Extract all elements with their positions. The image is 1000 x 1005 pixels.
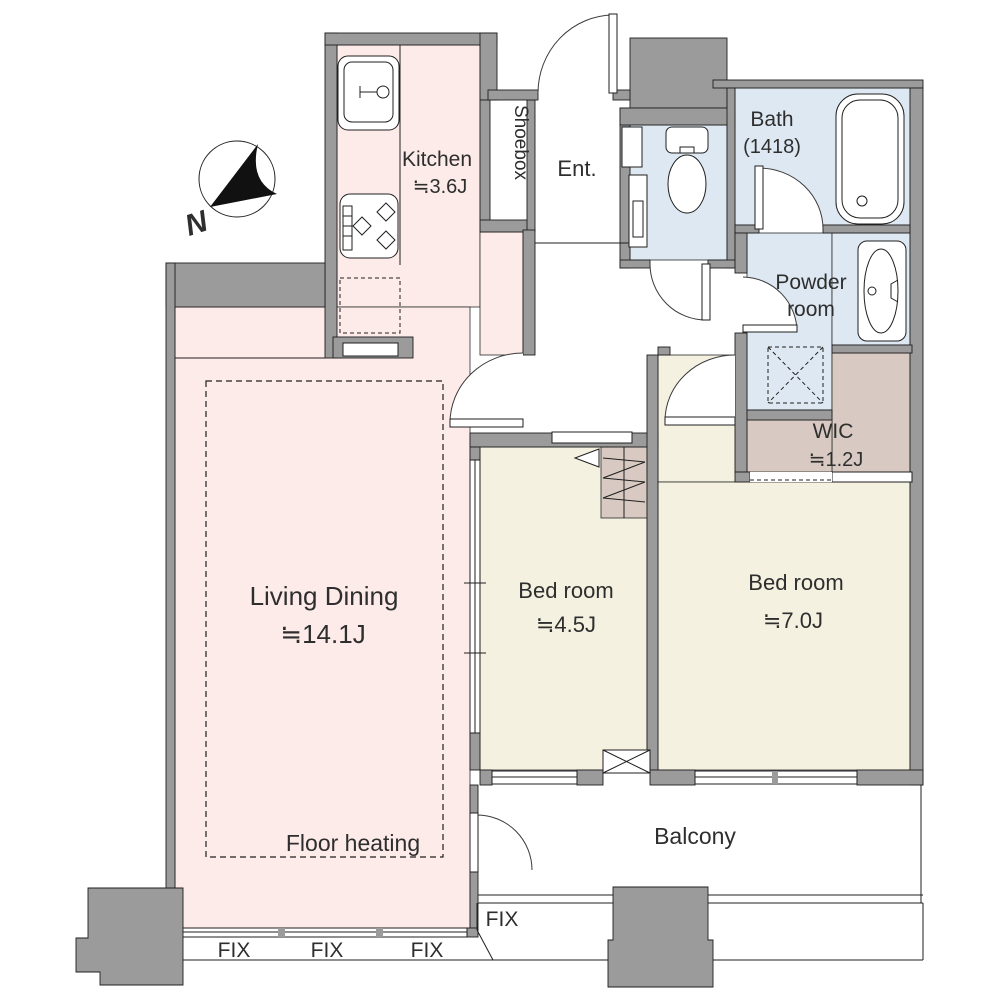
pantry-floor bbox=[480, 232, 523, 355]
wall-kitchen-left bbox=[325, 33, 337, 358]
bathtub-icon bbox=[836, 94, 904, 224]
toilet-door-swing bbox=[650, 264, 706, 320]
pillar-left bbox=[76, 888, 183, 985]
shoebox-label: Shoebox bbox=[510, 105, 531, 181]
living-dining-label: Living Dining bbox=[250, 581, 399, 611]
wall-corner-block bbox=[467, 928, 478, 937]
wall-shoebox-bottom bbox=[480, 220, 528, 232]
wall-balcony-left-upper bbox=[470, 785, 478, 815]
entrance-door-swing bbox=[538, 15, 613, 93]
wic-door-panel bbox=[832, 472, 912, 482]
wall-south-b bbox=[577, 770, 603, 785]
wic-opening bbox=[750, 472, 832, 482]
wall-wic-top bbox=[832, 345, 912, 353]
bath-door-leaf bbox=[755, 166, 763, 229]
wall-band-left bbox=[166, 263, 325, 307]
wall-bedroom-large-top-stub bbox=[658, 347, 670, 355]
window-mullion bbox=[278, 928, 285, 937]
bedroom-small-area-label: ≒4.5J bbox=[536, 612, 596, 637]
wall-toilet-top bbox=[620, 108, 735, 125]
wall-toilet-bottom-left bbox=[620, 260, 650, 268]
floor-plan: N Kitchen ≒3.6J Shoebox Ent. Bath (1418)… bbox=[0, 0, 1000, 1000]
wall-bath-bottom-right bbox=[823, 225, 910, 233]
wic-area-label: ≒1.2J bbox=[809, 449, 864, 471]
sink-outer bbox=[338, 56, 399, 130]
wall-wic-bottom-stub bbox=[735, 472, 750, 482]
powder-door-leaf bbox=[743, 325, 797, 332]
floor-heating-label: Floor heating bbox=[286, 830, 420, 856]
bedroom-small-sliding-door bbox=[552, 432, 632, 443]
wall-right-outer bbox=[910, 88, 923, 785]
washbasin-counter bbox=[858, 241, 906, 341]
pillar-center bbox=[608, 887, 713, 987]
wall-toilet-bottom-right bbox=[708, 260, 735, 268]
bath-size-label: (1418) bbox=[743, 136, 801, 158]
living-dining-area-label: ≒14.1J bbox=[280, 619, 365, 649]
wall-structure-top bbox=[630, 38, 727, 108]
toilet-tank bbox=[666, 127, 708, 153]
compass: N bbox=[181, 141, 277, 243]
kitchen-stove-icon bbox=[340, 194, 398, 258]
sink-faucet bbox=[377, 86, 389, 98]
ledge-diagonal bbox=[477, 930, 493, 960]
wall-kitchen-top bbox=[325, 33, 497, 45]
bath-label: Bath bbox=[750, 108, 793, 131]
wall-hall-left bbox=[523, 230, 535, 355]
bedroom-large-door-leaf bbox=[665, 417, 735, 425]
wall-powder-left-upper bbox=[735, 233, 747, 273]
wall-entrance-top-left bbox=[488, 90, 538, 100]
wall-powder-wic-left bbox=[735, 333, 747, 472]
wall-powder-bottom bbox=[747, 410, 832, 420]
wall-toilet-bath-divider bbox=[727, 88, 735, 268]
kitchen-label: Kitchen bbox=[402, 148, 472, 171]
wall-partition-bottom-stub bbox=[470, 733, 480, 770]
powder-room-label-1: Powder bbox=[775, 271, 846, 294]
pipe-shaft bbox=[603, 750, 650, 773]
wall-left-outer bbox=[166, 263, 175, 928]
bedroom-large-area-label: ≒7.0J bbox=[763, 608, 823, 633]
compass-north-label: N bbox=[181, 204, 213, 242]
bathtub-outer bbox=[836, 94, 904, 224]
balcony-door-swing bbox=[477, 815, 532, 870]
niche-inset bbox=[343, 343, 398, 356]
living-door-leaf bbox=[450, 419, 523, 427]
wall-bedroom-divider bbox=[647, 355, 658, 770]
wall-south-d bbox=[857, 770, 923, 785]
toilet-door-leaf bbox=[702, 264, 710, 320]
entrance-label: Ent. bbox=[557, 156, 596, 181]
bedroom-large-label: Bed room bbox=[748, 570, 843, 595]
floor-plan-svg: N Kitchen ≒3.6J Shoebox Ent. Bath (1418)… bbox=[0, 0, 1000, 1000]
fix-window-label-2: FIX bbox=[311, 939, 344, 962]
washbasin-icon bbox=[858, 241, 906, 341]
wall-partition-top-stub bbox=[470, 447, 480, 460]
toilet-cabinet bbox=[629, 175, 647, 247]
wall-shoebox-left bbox=[480, 100, 490, 232]
wic-label: WIC bbox=[813, 420, 854, 443]
fix-window-label-3: FIX bbox=[411, 939, 444, 962]
fix-window-label-1: FIX bbox=[218, 939, 251, 962]
wall-bath-top bbox=[713, 80, 923, 88]
bedroom-small-label: Bed room bbox=[518, 578, 613, 603]
balcony-label: Balcony bbox=[654, 823, 736, 849]
entrance-door-leaf bbox=[609, 14, 617, 93]
window-mullion bbox=[772, 771, 778, 784]
wall-south-a bbox=[480, 770, 492, 785]
balcony-door-leaf bbox=[470, 813, 478, 872]
toilet-bowl bbox=[668, 155, 706, 213]
kitchen-area-label: ≒3.6J bbox=[413, 176, 468, 198]
fix-window-label-4: FIX bbox=[486, 908, 519, 931]
toilet-shelf bbox=[622, 127, 642, 167]
window-mullion bbox=[376, 928, 383, 937]
powder-room-label-2: room bbox=[787, 298, 835, 321]
kitchen-sink-icon bbox=[338, 56, 399, 130]
wall-south-c bbox=[650, 770, 695, 785]
